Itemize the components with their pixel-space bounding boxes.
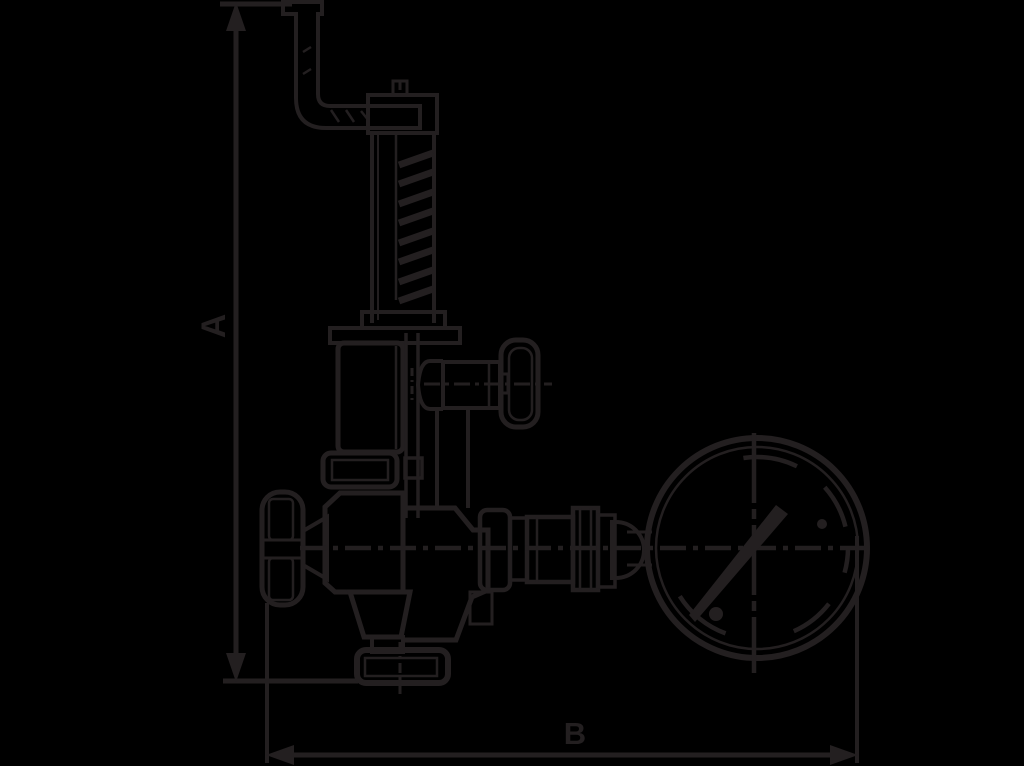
spring-coils [399, 153, 433, 301]
test-lever [283, 2, 420, 128]
valve-body [325, 493, 492, 640]
valve-dimension-drawing: A B [0, 0, 1024, 766]
test-lever-knurl-marks [303, 47, 369, 122]
dimension-b-arrow-left-icon [266, 745, 294, 765]
dimension-b: B [266, 536, 858, 765]
technical-drawing-canvas: A B [0, 0, 1024, 766]
dimension-b-label: B [564, 716, 586, 751]
gauge-needle [689, 505, 788, 622]
valve-body-central [325, 493, 403, 592]
bottom-flange-outer [357, 650, 448, 683]
union-pipe [510, 518, 527, 580]
left-handwheel-inner-top [269, 499, 293, 540]
mid-flange-outer [323, 453, 397, 487]
left-handwheel-inner-bottom [269, 558, 293, 600]
dimension-a-label: A [195, 314, 233, 339]
mid-flange-inner [332, 460, 388, 480]
bonnet [338, 333, 418, 518]
test-lever-outline [283, 2, 420, 128]
dimension-a-arrow-down-icon [226, 653, 246, 682]
dimension-b-arrow-right-icon [830, 745, 858, 765]
center-lines [300, 82, 872, 696]
gauge-pin-low [709, 607, 723, 621]
valve-body-right [403, 508, 488, 640]
pressure-gauge [647, 433, 867, 673]
bottom-taper [350, 592, 410, 637]
side-outlet [418, 340, 552, 508]
bonnet-body [338, 343, 403, 452]
spring-housing [330, 81, 460, 343]
gauge-pin-high [817, 519, 827, 529]
